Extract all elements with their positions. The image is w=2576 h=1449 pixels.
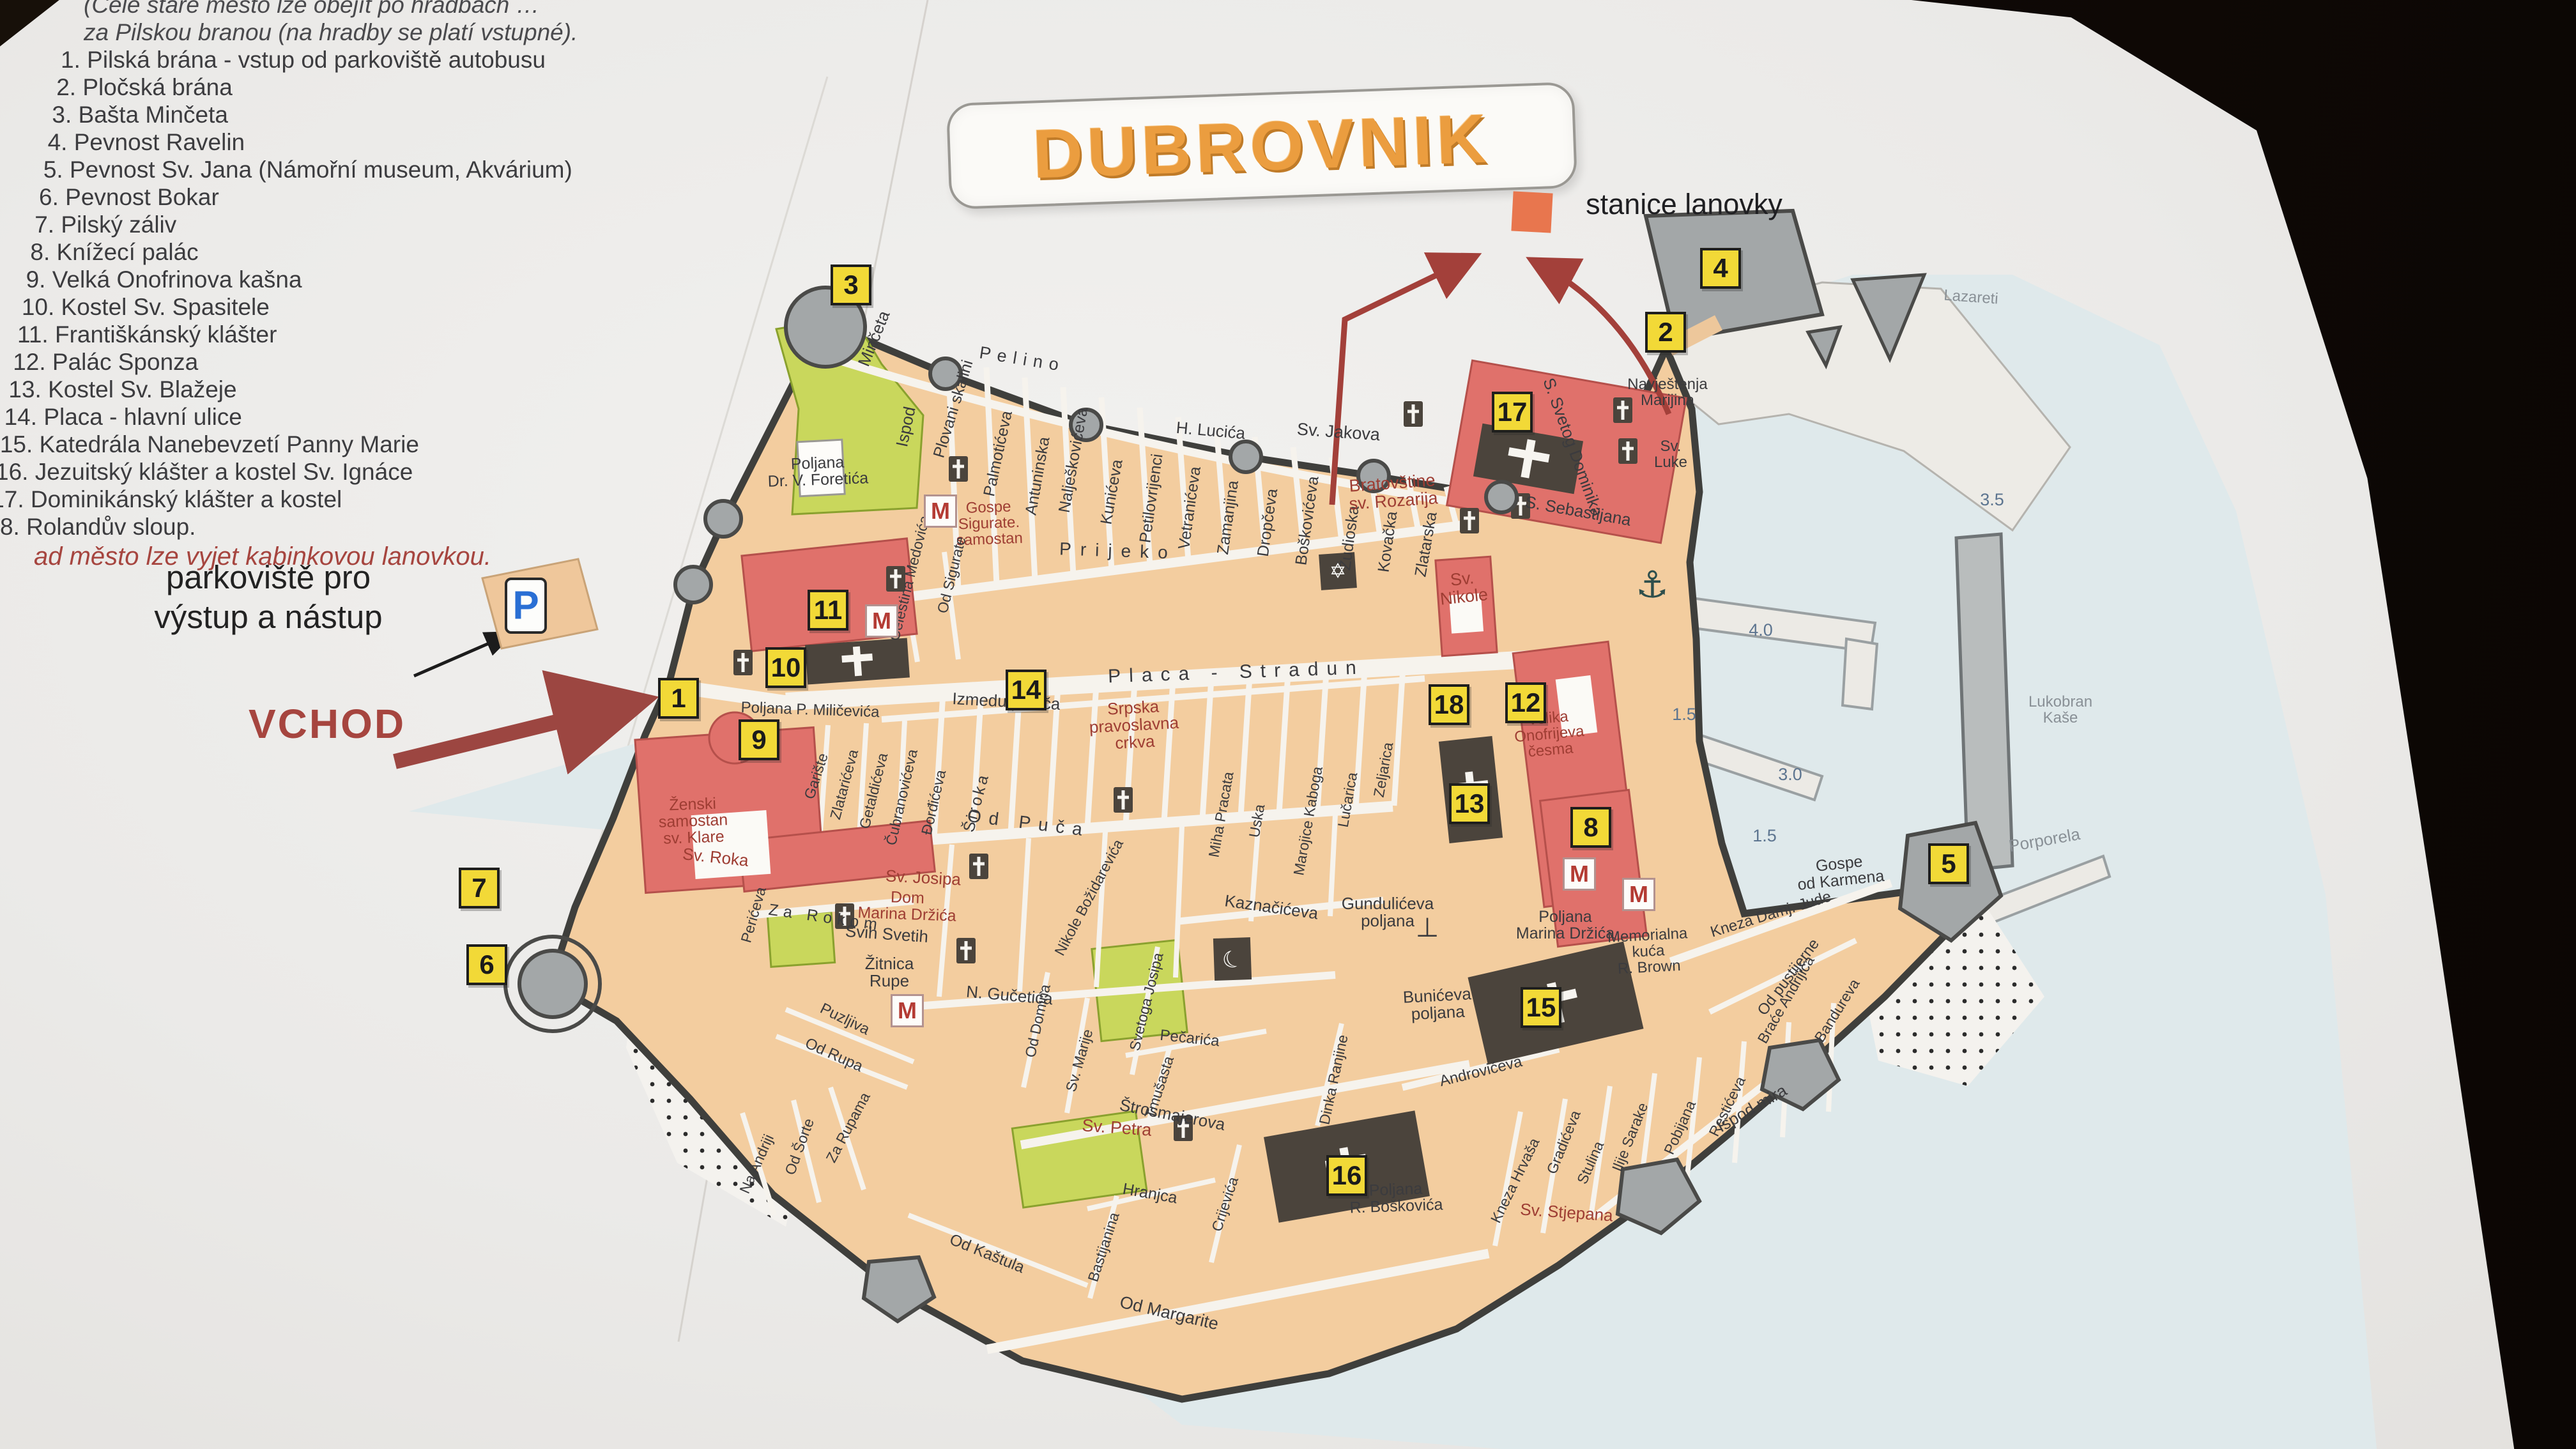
museum-badge: M (1563, 857, 1596, 891)
museum-badges: MMMMM (0, 0, 2576, 1449)
museum-badge: M (891, 994, 924, 1027)
museum-badge: M (924, 494, 957, 528)
museum-badge: M (865, 604, 898, 638)
photo-of-dubrovnik-map: { "colors":{"badge_yellow":"#f2d937","mu… (0, 0, 2576, 1449)
museum-badge: M (1622, 878, 1655, 911)
